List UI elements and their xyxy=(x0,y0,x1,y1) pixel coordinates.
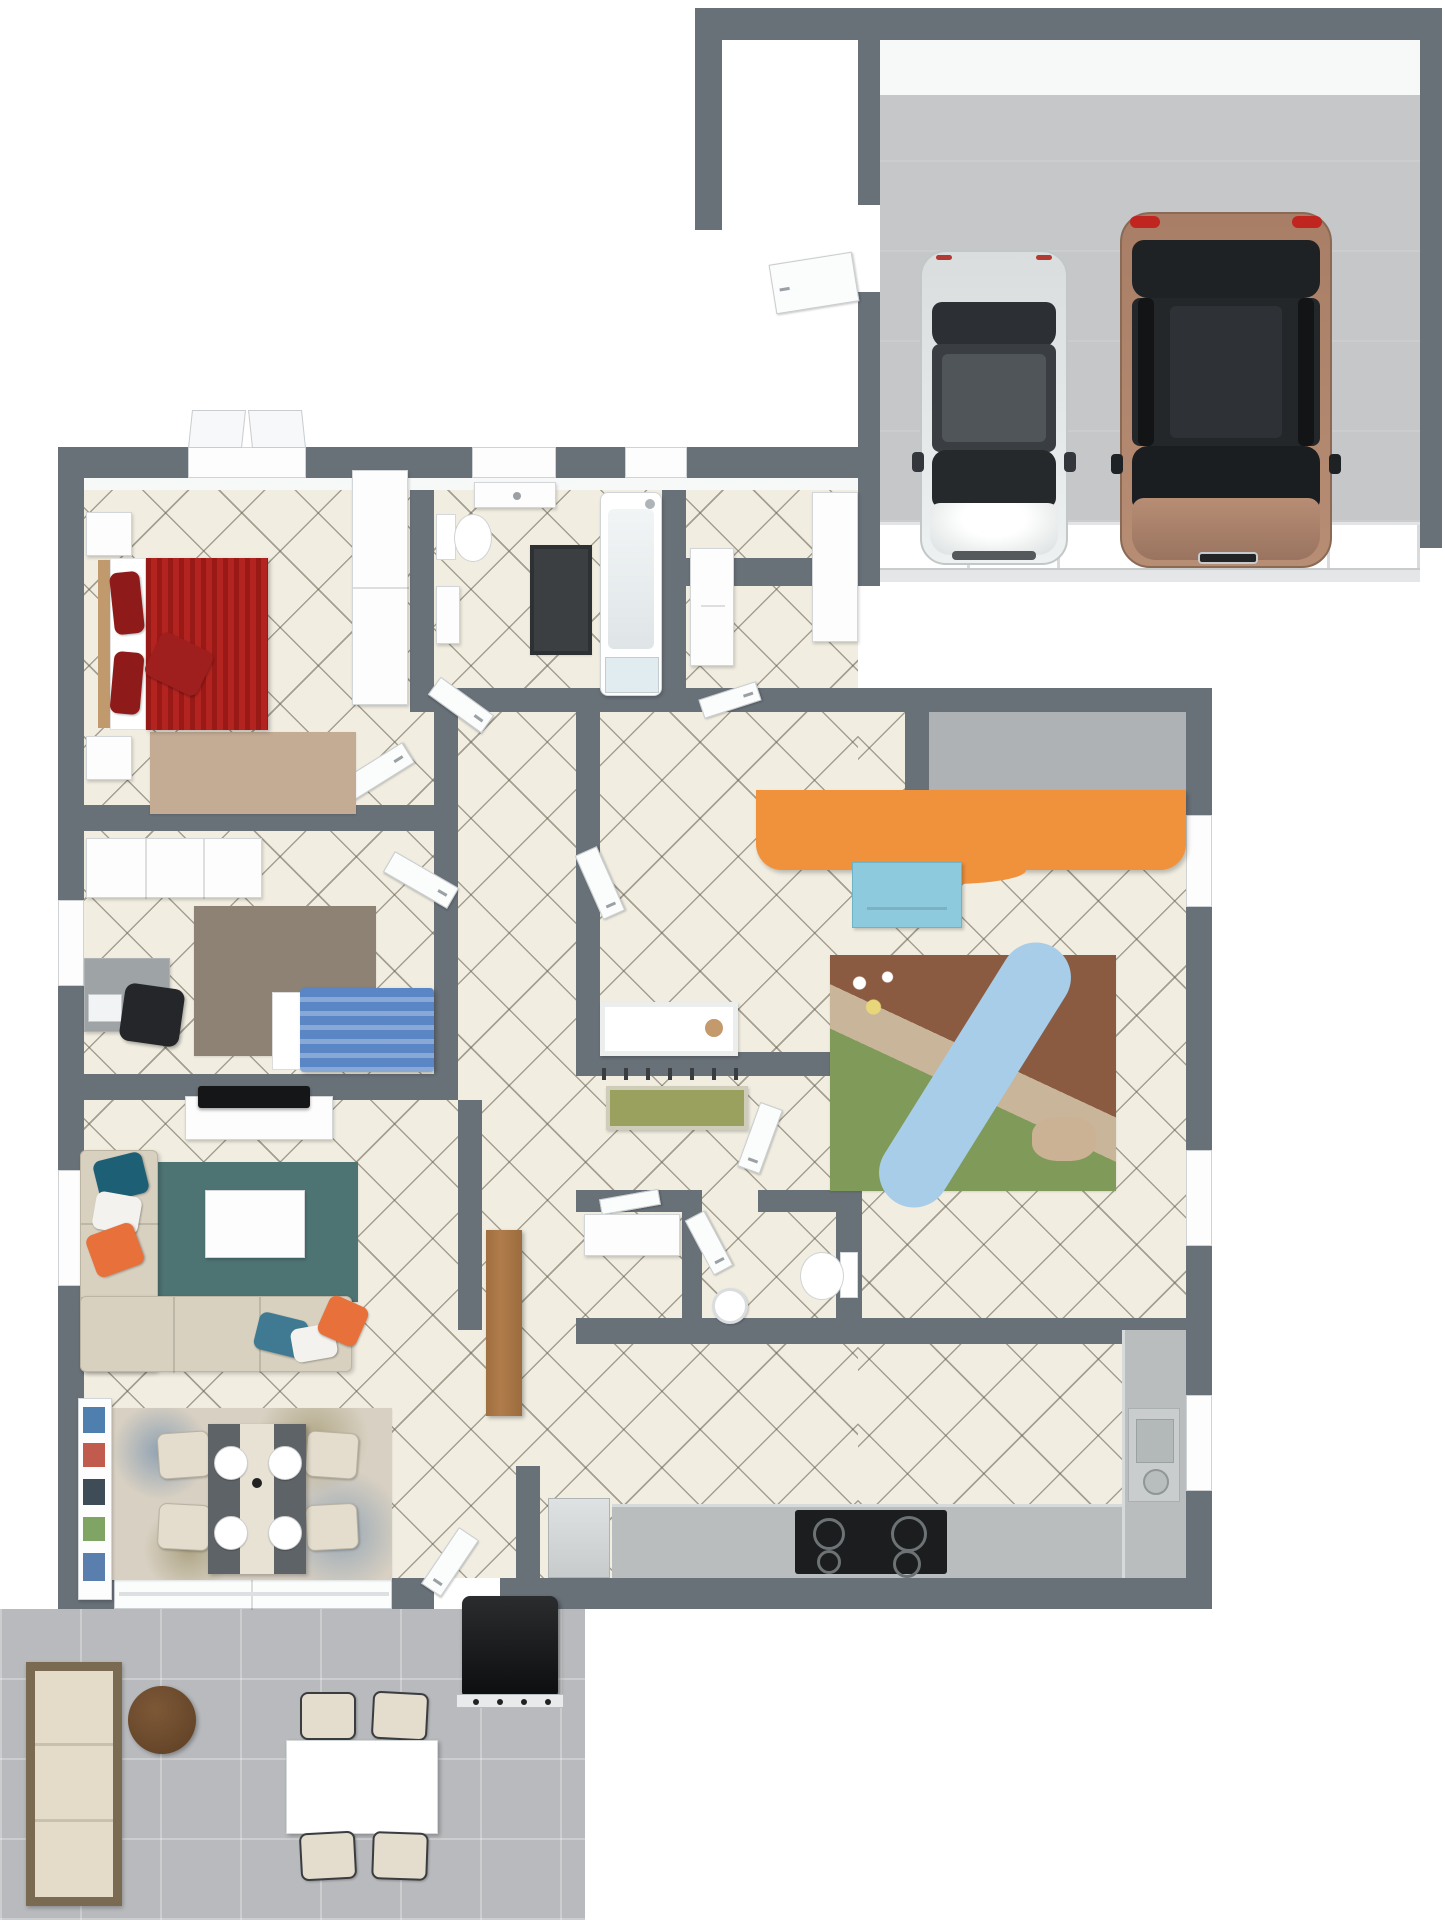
olive-bench xyxy=(606,1086,748,1130)
dishwasher xyxy=(548,1498,610,1578)
wardrobe-seam xyxy=(353,587,409,589)
bedroom1-window xyxy=(188,447,306,478)
wardrobe-seam xyxy=(145,839,147,899)
taillight-left xyxy=(936,255,952,260)
mirror-left xyxy=(912,452,924,472)
garage-wall-left-lower xyxy=(858,292,880,586)
bedroom1-window-pane-right xyxy=(248,410,306,448)
car-roof xyxy=(932,344,1056,452)
flat-tv xyxy=(198,1086,310,1108)
faucet xyxy=(513,492,521,500)
drawer-seam xyxy=(867,907,947,910)
car-roof xyxy=(1132,298,1320,446)
round-washbasin xyxy=(712,1288,748,1324)
table-centerpiece xyxy=(252,1478,262,1488)
teddy-bear xyxy=(705,1019,723,1037)
garage-wall-top xyxy=(695,8,1442,40)
burner xyxy=(813,1518,845,1550)
sink-basin xyxy=(1136,1419,1174,1463)
sling-chair-4 xyxy=(371,1831,429,1881)
place-setting xyxy=(214,1446,248,1480)
red-pillow-top xyxy=(109,571,145,636)
laundry-window xyxy=(625,447,687,478)
books xyxy=(83,1553,105,1581)
laundry-counter xyxy=(812,492,858,642)
red-pillow-bottom xyxy=(109,651,144,715)
sling-chair-2 xyxy=(371,1691,429,1742)
office-chair xyxy=(118,982,185,1048)
car-hood xyxy=(1132,498,1320,560)
washer-seam xyxy=(701,605,725,607)
dining-chair-2 xyxy=(157,1503,211,1552)
car-hood xyxy=(930,503,1058,555)
orange-wavy-desk xyxy=(756,790,1186,870)
taillight-left xyxy=(1130,216,1160,228)
mirror-right xyxy=(1329,454,1341,474)
grill-knob xyxy=(521,1699,527,1705)
place-setting xyxy=(268,1446,302,1480)
shower-fixture xyxy=(645,499,655,509)
kitchen-sink xyxy=(1128,1408,1180,1502)
landscape-play-rug xyxy=(830,955,1116,1191)
wall-top xyxy=(58,447,880,478)
round-wood-coffee-table xyxy=(128,1686,196,1754)
toilet-bowl xyxy=(454,514,492,562)
windshield xyxy=(932,450,1056,508)
bedroom1-rug xyxy=(150,732,356,814)
dining-chair-4 xyxy=(305,1503,359,1552)
coat-hooks xyxy=(602,1068,752,1080)
bathtub-inner xyxy=(608,509,654,649)
blue-drawer-stool xyxy=(852,862,962,928)
dining-chair-1 xyxy=(156,1430,211,1480)
play-rug-patch xyxy=(1032,1117,1096,1161)
roof-panel xyxy=(1170,306,1282,438)
wall-kitchen-top xyxy=(576,1318,1186,1344)
garage-side-door xyxy=(769,252,860,315)
place-setting xyxy=(214,1516,248,1550)
nightstand-bottom xyxy=(86,736,132,780)
wardrobe-seam xyxy=(203,839,205,899)
burner xyxy=(817,1550,841,1574)
taillight-right xyxy=(1292,216,1322,228)
car-bronze-suv xyxy=(1120,212,1332,568)
blue-single-bed xyxy=(300,988,434,1072)
side-glass-left xyxy=(1138,298,1154,446)
laptop xyxy=(88,994,122,1022)
toilet-tank xyxy=(436,514,456,560)
dark-bath-mat xyxy=(530,545,592,655)
wall-top-inner-face xyxy=(84,478,858,490)
garage-wall-left-upper xyxy=(858,40,880,205)
bookshelf xyxy=(78,1398,112,1600)
sliding-glass-door xyxy=(114,1578,392,1609)
wall-living-hall-divider xyxy=(458,1100,482,1330)
bathtub xyxy=(600,492,662,696)
outdoor-dining-table xyxy=(286,1740,438,1834)
books xyxy=(83,1443,105,1467)
outdoor-wicker-sofa xyxy=(26,1662,122,1906)
rear-window xyxy=(1132,240,1320,298)
mirror-right xyxy=(1064,452,1076,472)
tall-wardrobe xyxy=(352,470,408,705)
garage-wall-inner-face xyxy=(880,40,1420,100)
wc-toilet-bowl xyxy=(800,1252,844,1300)
car-grille xyxy=(1198,552,1258,564)
wall-bathroom-right xyxy=(662,478,686,712)
wall-kitchen-stub xyxy=(516,1466,540,1578)
bathroom-wall-cabinet xyxy=(436,586,460,644)
hall-right-window xyxy=(1186,1150,1212,1246)
mirror-left xyxy=(1111,454,1123,474)
table-runner xyxy=(240,1424,274,1574)
bathroom-window xyxy=(472,447,556,478)
roof-panel xyxy=(942,354,1046,442)
garage-wall-stub-left xyxy=(695,40,722,230)
wooden-console xyxy=(486,1230,522,1416)
bed-headboard xyxy=(98,560,110,728)
burner xyxy=(891,1516,927,1552)
kitchen-window xyxy=(1186,1395,1212,1491)
play-rug-flowers xyxy=(842,965,912,1025)
washing-machine xyxy=(690,548,734,666)
place-setting xyxy=(268,1516,302,1550)
grill-knob xyxy=(473,1699,479,1705)
rear-window xyxy=(932,302,1056,348)
car-grille xyxy=(952,551,1036,560)
washbasin-vanity xyxy=(474,482,556,508)
kids-storage-niche xyxy=(929,712,1186,800)
shower-glass-panel xyxy=(605,657,659,693)
books xyxy=(83,1517,105,1541)
wall-niche-left xyxy=(905,712,929,800)
grill-tool-bar xyxy=(456,1694,564,1708)
garage-door-sill xyxy=(880,570,1420,582)
side-glass-right xyxy=(1298,298,1314,446)
bedroom1-window-pane-left xyxy=(188,410,246,448)
taillight-right xyxy=(1036,255,1052,260)
wall-kitchen-bottom xyxy=(500,1578,1186,1609)
car-silver-sedan xyxy=(920,250,1068,565)
kids-window xyxy=(1186,815,1212,907)
coffee-table xyxy=(205,1190,305,1258)
white-crib xyxy=(600,1002,738,1056)
black-grill xyxy=(462,1596,558,1696)
wall-bathroom-left xyxy=(410,478,434,712)
slider-rail xyxy=(119,1592,389,1596)
closet-shelf xyxy=(584,1214,680,1256)
sling-chair-3 xyxy=(299,1831,357,1882)
grill-knob xyxy=(497,1699,503,1705)
cushion-seam xyxy=(35,1819,113,1822)
books xyxy=(83,1479,105,1505)
burner xyxy=(893,1550,921,1578)
grill-knob xyxy=(545,1699,551,1705)
books xyxy=(83,1407,105,1433)
wall-wc-top xyxy=(758,1190,862,1212)
dining-chair-3 xyxy=(304,1430,359,1480)
nightstand-top xyxy=(86,512,132,556)
sling-chair-1 xyxy=(300,1692,356,1740)
sofa-seam xyxy=(173,1297,175,1373)
wardrobe-row xyxy=(86,838,262,898)
single-bed-pillow-end xyxy=(272,992,302,1070)
bedroom2-window xyxy=(58,900,84,986)
garage-wall-right xyxy=(1420,40,1442,548)
pot-on-counter xyxy=(1143,1469,1169,1495)
black-cooktop xyxy=(795,1510,947,1574)
floor-plan xyxy=(0,0,1445,1920)
cushion-seam xyxy=(35,1743,113,1746)
